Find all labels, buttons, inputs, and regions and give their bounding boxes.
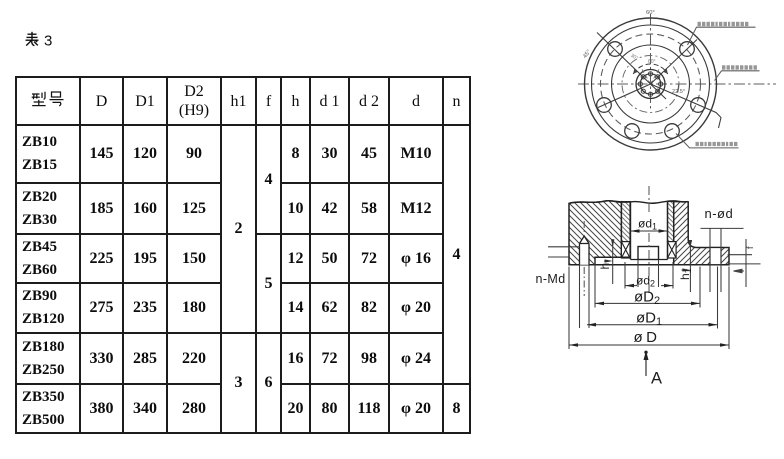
svg-text:ød1: ød1 (638, 217, 657, 232)
svg-text:øD2: øD2 (634, 289, 660, 308)
svg-text:h: h (598, 263, 612, 270)
svg-text:A: A (651, 370, 662, 388)
svg-text:22.5°: 22.5° (672, 89, 685, 95)
svg-text:h1: h1 (678, 268, 693, 280)
svg-text:30°: 30° (629, 53, 639, 62)
svg-text:øD1: øD1 (636, 310, 662, 329)
svg-text:60°: 60° (646, 10, 655, 16)
svg-text:n-Md: n-Md (536, 272, 566, 286)
svg-text:n-ød: n-ød (705, 206, 734, 221)
svg-text:ød2: ød2 (636, 274, 655, 289)
svg-text:45°: 45° (582, 49, 592, 60)
svg-text:øD: øD (634, 329, 658, 346)
svg-text:60°: 60° (648, 59, 656, 65)
